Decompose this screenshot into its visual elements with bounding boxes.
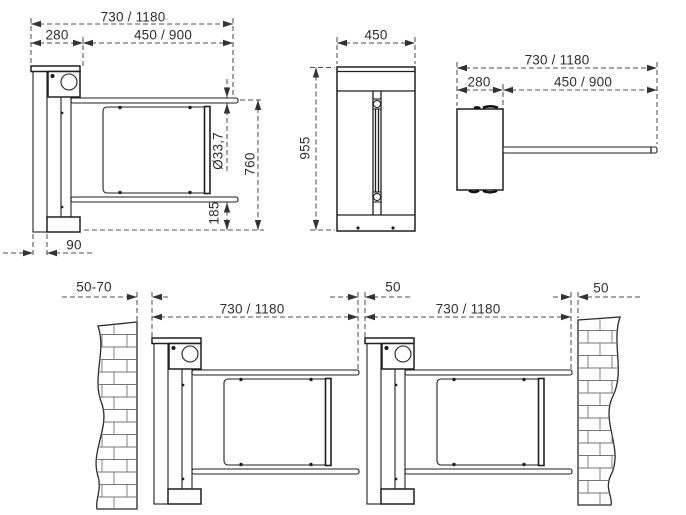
front-view [310, 37, 415, 231]
dim-side-lower-rail-height: 185 [207, 201, 221, 224]
gate-unit-left [152, 338, 359, 504]
dim-install-wall-gap-left: 50-70 [76, 280, 112, 294]
right-wall [576, 317, 626, 505]
dim-side-upper-rail-height: 760 [243, 152, 257, 175]
gate-unit-right [365, 338, 572, 504]
cabinet-front [337, 67, 415, 231]
dim-side-total-width: 730 / 1180 [101, 10, 166, 24]
dim-install-right-unit-width: 730 / 1180 [436, 302, 501, 316]
dim-install-wall-gap-right: 50 [593, 281, 608, 295]
left-wall [90, 322, 138, 510]
dim-plan-total-width: 730 / 1180 [525, 53, 590, 67]
dim-side-housing-width: 280 [45, 28, 68, 42]
installation-dim-lines [62, 292, 640, 371]
installation-view [62, 292, 640, 510]
dim-install-left-unit-width: 730 / 1180 [220, 302, 285, 316]
dim-front-height: 955 [298, 136, 312, 159]
dim-plan-housing-depth: 280 [467, 75, 490, 89]
dim-side-post-depth: 90 [66, 238, 81, 252]
cabinet-plan [457, 106, 657, 192]
dim-install-between-gap: 50 [385, 280, 400, 294]
dim-plan-arm-length: 450 / 900 [554, 75, 612, 89]
technical-drawing: 730 / 1180 280 450 / 900 Ø33,7 760 185 9… [0, 0, 686, 515]
dim-side-tube-diameter: Ø33,7 [211, 132, 225, 170]
dim-side-arm-length: 450 / 900 [134, 28, 192, 42]
dim-front-width: 450 [364, 28, 387, 42]
